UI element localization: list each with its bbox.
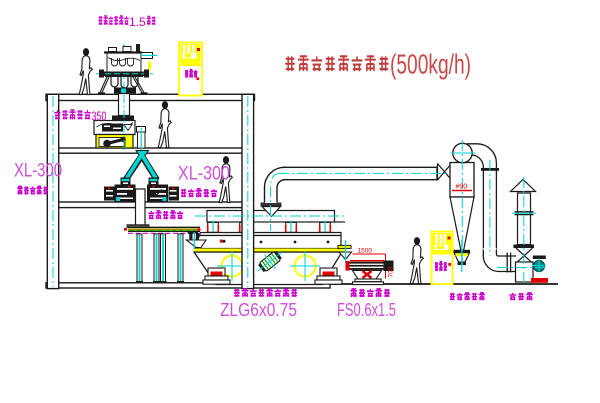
svg-text:350: 350: [92, 110, 107, 124]
svg-text:1500: 1500: [358, 248, 373, 255]
svg-text:#90: #90: [456, 184, 468, 191]
svg-text:700: 700: [388, 266, 395, 277]
svg-text:XL-300: XL-300: [178, 164, 230, 185]
svg-text:1.5: 1.5: [129, 15, 146, 29]
svg-text:FS0.6x1.5: FS0.6x1.5: [337, 300, 396, 320]
svg-text:(500kg/h): (500kg/h): [390, 49, 471, 80]
svg-text:XL-300: XL-300: [14, 161, 62, 182]
svg-text:ZLG6x0.75: ZLG6x0.75: [220, 300, 297, 320]
